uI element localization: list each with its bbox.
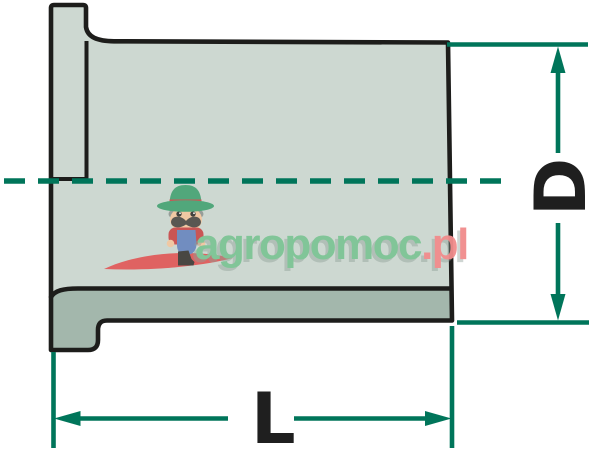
diameter-label: D	[520, 158, 600, 216]
farmer-hand-left	[167, 240, 175, 248]
length-label: L	[251, 378, 296, 459]
dimension-length: L	[54, 326, 453, 459]
brand-name: agropomoc	[195, 220, 422, 269]
farmer-hat-brim	[157, 200, 214, 212]
farmer-eye-glint-left	[179, 212, 181, 214]
arrowhead-up-icon	[551, 47, 566, 74]
brand-text: agropomoc.pl	[195, 220, 468, 269]
bushing-part	[51, 5, 452, 350]
dimension-diameter: D	[447, 45, 600, 323]
brand-tld: .pl	[421, 220, 468, 269]
bushing-diagram: D L	[0, 0, 600, 459]
arrowhead-left-icon	[54, 411, 81, 426]
farmer-eye-left	[176, 211, 181, 216]
arrowhead-down-icon	[551, 294, 566, 321]
technical-drawing-canvas: D L	[0, 0, 600, 459]
farmer-eye-right	[190, 211, 195, 216]
arrowhead-right-icon	[425, 411, 452, 426]
farmer-eye-glint-right	[193, 212, 195, 214]
